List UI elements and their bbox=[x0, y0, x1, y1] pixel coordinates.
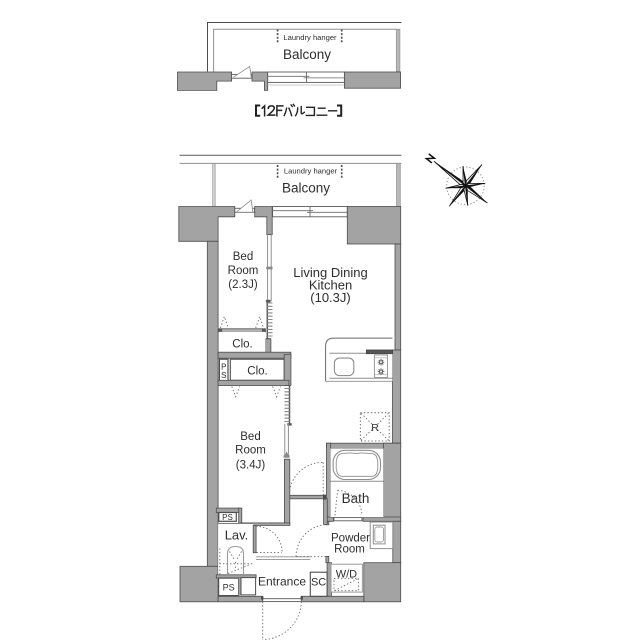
svg-text:R: R bbox=[371, 422, 379, 434]
svg-text:Balcony: Balcony bbox=[283, 47, 331, 62]
svg-text:PS: PS bbox=[222, 513, 233, 522]
svg-text:Clo.: Clo. bbox=[232, 339, 252, 351]
svg-text:Entrance: Entrance bbox=[258, 575, 306, 589]
svg-text:Clo.: Clo. bbox=[247, 365, 267, 377]
svg-text:SC: SC bbox=[311, 576, 326, 588]
svg-text:Balcony: Balcony bbox=[282, 181, 330, 196]
svg-text:(10.3J): (10.3J) bbox=[310, 290, 350, 305]
svg-text:Laundry hanger: Laundry hanger bbox=[283, 33, 337, 42]
svg-text:Room: Room bbox=[235, 445, 266, 457]
svg-text:W/D: W/D bbox=[336, 568, 357, 580]
svg-text:Bed: Bed bbox=[233, 251, 253, 263]
svg-text:Bath: Bath bbox=[342, 491, 370, 506]
svg-text:Room: Room bbox=[228, 265, 259, 277]
svg-text:(2.3J): (2.3J) bbox=[228, 279, 258, 291]
svg-text:S: S bbox=[221, 371, 226, 380]
svg-text:Room: Room bbox=[334, 543, 365, 555]
svg-text:Laundry hanger: Laundry hanger bbox=[284, 166, 338, 175]
svg-text:Bed: Bed bbox=[240, 431, 260, 443]
svg-text:PS: PS bbox=[223, 583, 235, 593]
svg-text:(3.4J): (3.4J) bbox=[236, 460, 266, 472]
svg-text:Lav.: Lav. bbox=[225, 527, 249, 542]
svg-text:P: P bbox=[221, 362, 226, 371]
